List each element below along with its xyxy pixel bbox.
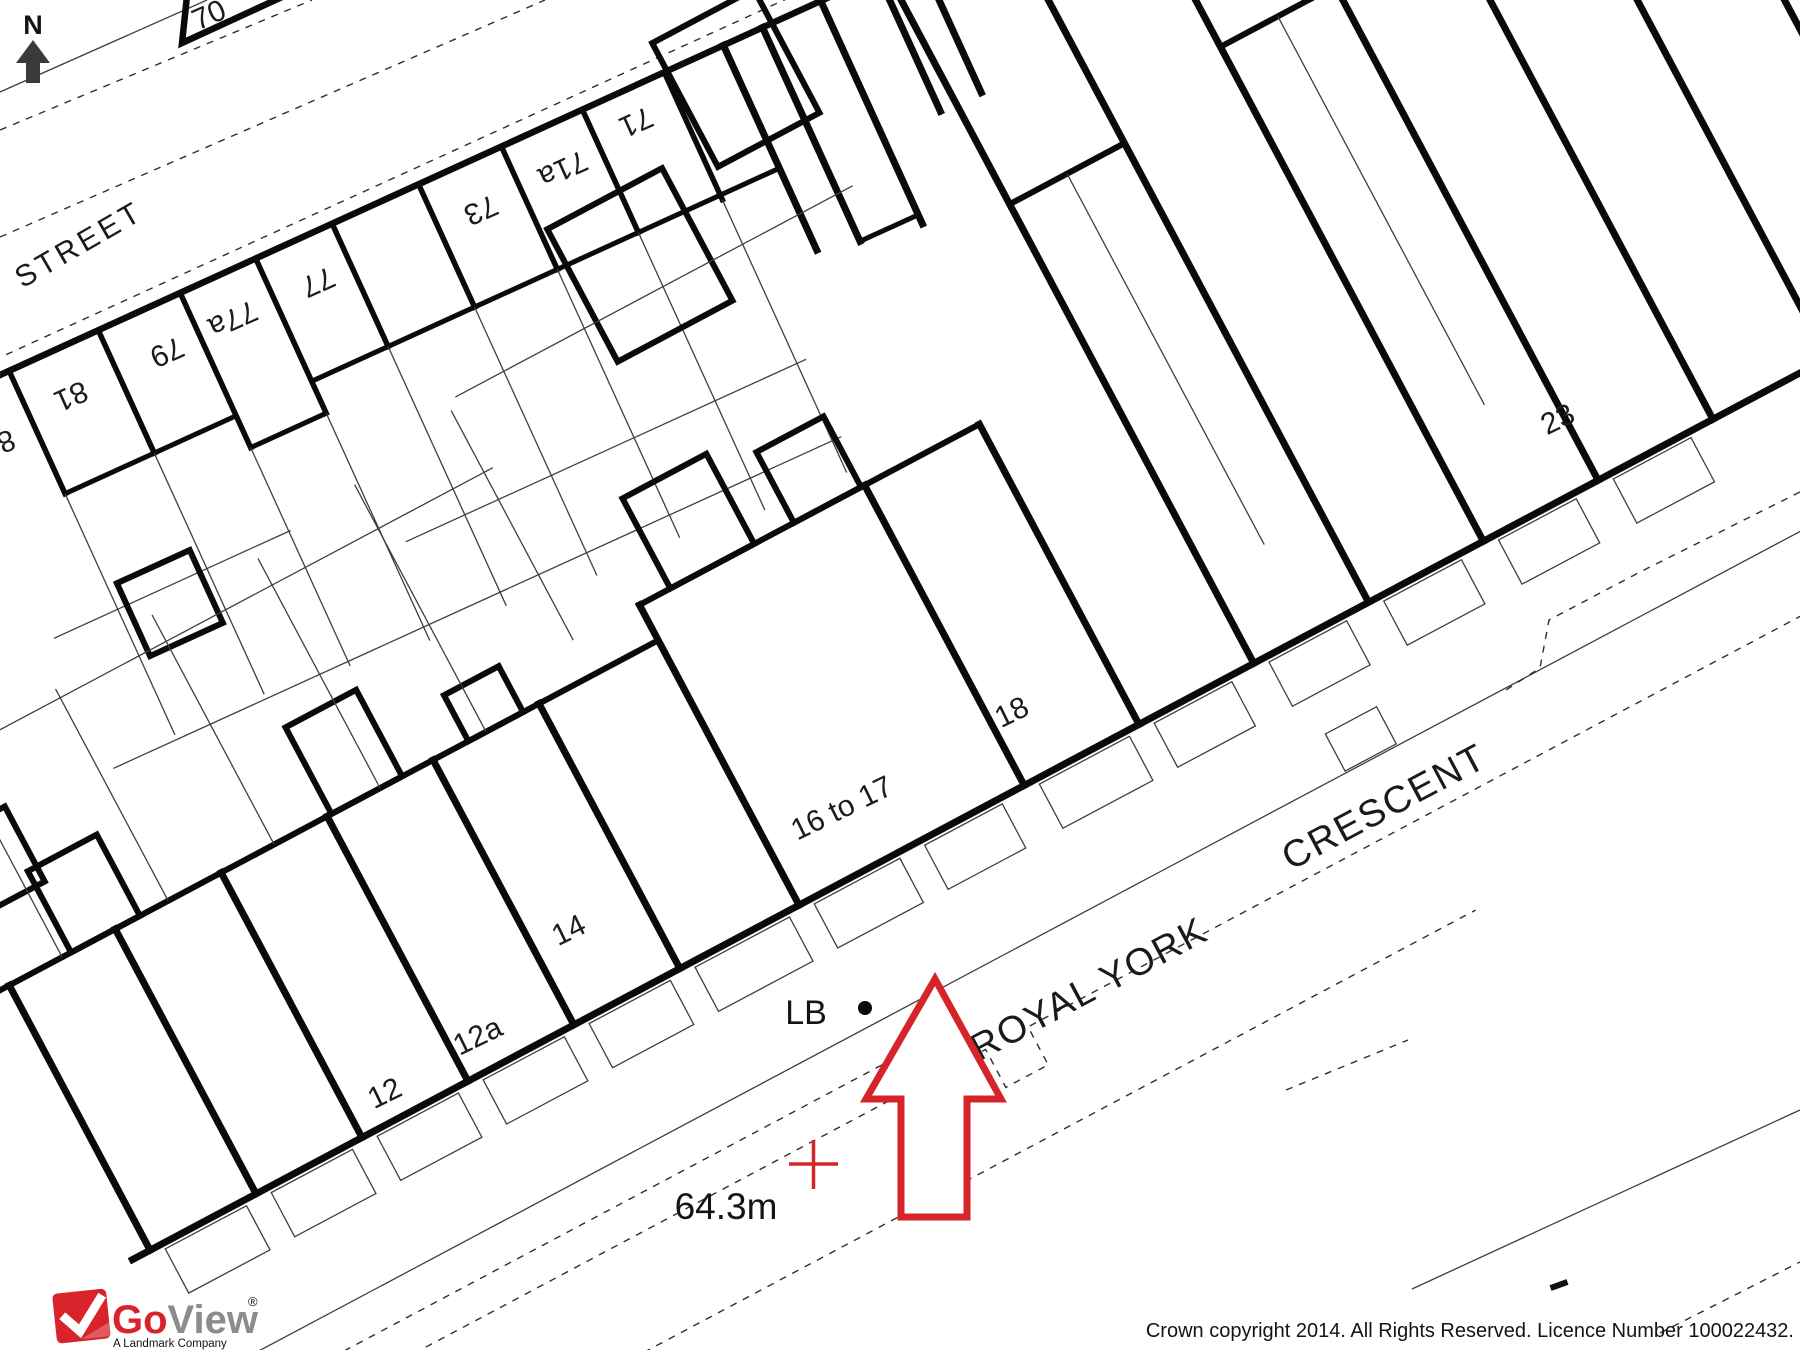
goview-logo-go: Go xyxy=(112,1298,168,1342)
house-number-73: 73 xyxy=(459,188,503,232)
house-number-81: 81 xyxy=(49,374,93,418)
street-label-street: STREET xyxy=(9,195,149,295)
north-label: N xyxy=(23,10,43,40)
house-number-71: 71 xyxy=(614,100,658,144)
house-number-14: 14 xyxy=(547,908,591,952)
copyright-notice: Crown copyright 2014. All Rights Reserve… xyxy=(1146,1320,1794,1342)
house-number-77a: 77a xyxy=(203,293,262,344)
goview-logo-tagline: A Landmark Company xyxy=(113,1338,227,1350)
house-number-16-17: 16 to 17 xyxy=(786,770,898,847)
house-number-77: 77 xyxy=(296,260,340,304)
letter-box-label: LB xyxy=(785,994,827,1032)
house-number-71a: 71a xyxy=(533,143,592,194)
house-number-12: 12 xyxy=(363,1071,407,1115)
goview-logo-icon xyxy=(52,1288,111,1343)
street-label-crescent: CRESCENT xyxy=(1275,736,1493,879)
goview-logo-view: View xyxy=(168,1298,259,1342)
lower-slope-lines xyxy=(1286,492,1800,1333)
site-location-plan: STREET ROYAL YORK CRESCENT 8 81 79 77a 7… xyxy=(0,0,1800,1350)
upper-terrace-buildings xyxy=(0,0,1183,804)
spot-height-cross-icon xyxy=(789,1140,838,1189)
street-label-royal-york: ROYAL YORK xyxy=(964,909,1215,1069)
house-number-8: 8 xyxy=(0,422,20,459)
house-number-70: 70 xyxy=(187,0,231,37)
post-box-dot xyxy=(858,1001,872,1015)
svg-text:GoView: GoView xyxy=(112,1298,259,1342)
goview-logo: GoView ® A Landmark Company xyxy=(52,1288,259,1350)
spot-height-label: 64.3m xyxy=(675,1186,778,1227)
house-number-79: 79 xyxy=(145,330,189,374)
registered-mark: ® xyxy=(248,1294,258,1309)
red-arrow-marker-icon xyxy=(866,979,1001,1217)
map-canvas: STREET ROYAL YORK CRESCENT 8 81 79 77a 7… xyxy=(0,0,1800,1350)
